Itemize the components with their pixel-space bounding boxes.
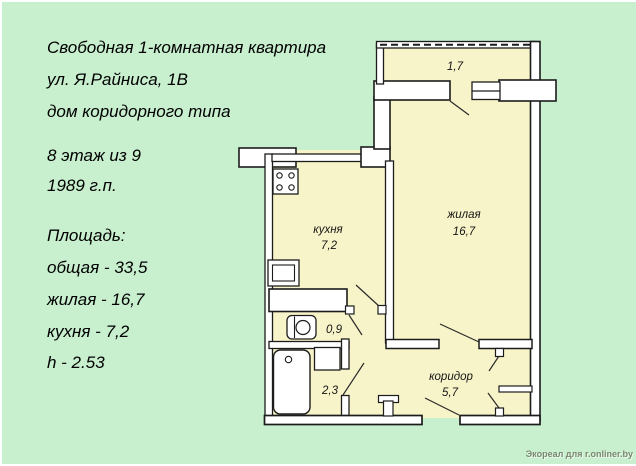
bath-area-label: 2,3 <box>321 385 339 397</box>
stove <box>273 169 298 194</box>
closet-top-jamb <box>496 349 504 357</box>
living-area-label: 16,7 <box>453 226 476 238</box>
bathtub-drain-icon <box>285 356 291 362</box>
stove-burner-icon <box>289 185 294 190</box>
wall-vertical-strip <box>374 97 390 149</box>
kitchen-sink-basin <box>273 265 295 281</box>
wall-bath-right-upper-stub <box>342 339 350 369</box>
wall-bottom-right <box>460 416 540 425</box>
wall-kitchen-top-window <box>272 154 364 162</box>
wall-closet-divider <box>499 386 532 392</box>
living-name-label: жилая <box>446 209 480 221</box>
toilet-bowl-icon <box>296 321 310 335</box>
wc-area-label: 0,9 <box>326 324 343 336</box>
watermark: Экореал для r.onliner.by <box>526 449 633 459</box>
closet-bottom-jamb <box>496 408 504 416</box>
wall-balcony-left <box>377 44 384 84</box>
bath-sink <box>315 348 341 371</box>
stove-burner-icon <box>277 173 282 178</box>
wall-living-bottom-left <box>386 340 439 349</box>
stove-burner-icon <box>277 185 282 190</box>
kitchen-door-jamb <box>378 306 386 315</box>
kitchen-name-label: кухня <box>313 224 342 236</box>
balcony-area-label: 1,7 <box>447 61 464 73</box>
floorplan: 1,7 кухня 7,2 жилая 16,7 0,9 2,3 коридор… <box>2 2 636 466</box>
wall-bottom-left <box>265 416 423 425</box>
wall-t-stub-stem <box>384 401 394 416</box>
stove-burner-icon <box>289 173 294 178</box>
wall-kitchen-living-divider <box>386 161 394 343</box>
wall-bath-right-lower-stub <box>342 396 350 417</box>
living-corridor-fill <box>388 92 534 418</box>
wall-living-bottom-right <box>479 340 532 349</box>
wall-balcony-right-block <box>499 80 556 101</box>
wall-balcony-top <box>377 42 535 49</box>
corridor-name-label: коридор <box>429 371 473 383</box>
wc-door-jamb <box>346 306 355 314</box>
corridor-area-label: 5,7 <box>442 387 459 399</box>
kitchen-area-label: 7,2 <box>321 240 338 252</box>
listing-image: Свободная 1-комнатная квартира ул. Я.Рай… <box>0 0 636 464</box>
wall-living-top-l <box>374 81 450 100</box>
wall-kitchen-wc-divider <box>269 289 347 312</box>
